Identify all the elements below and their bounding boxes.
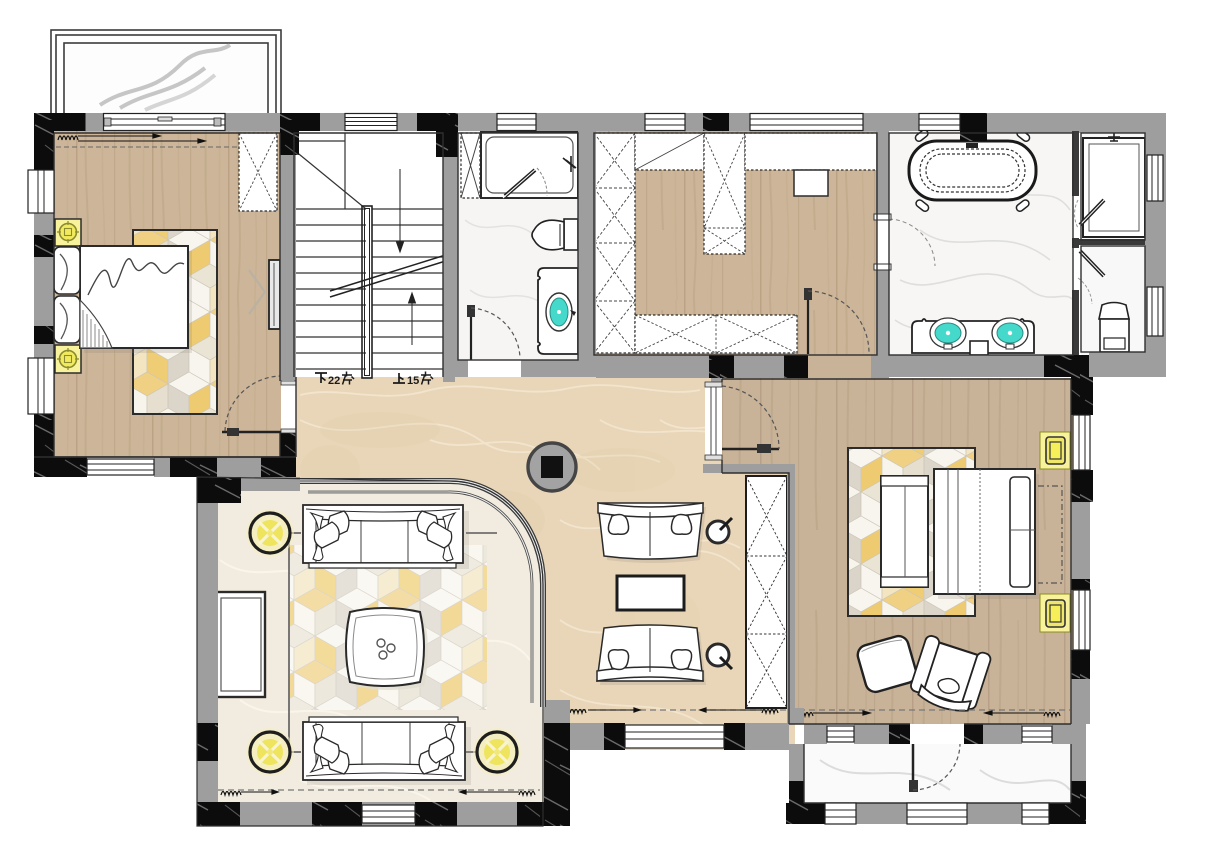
svg-text:15: 15	[407, 375, 419, 387]
svg-text:22: 22	[328, 375, 340, 387]
